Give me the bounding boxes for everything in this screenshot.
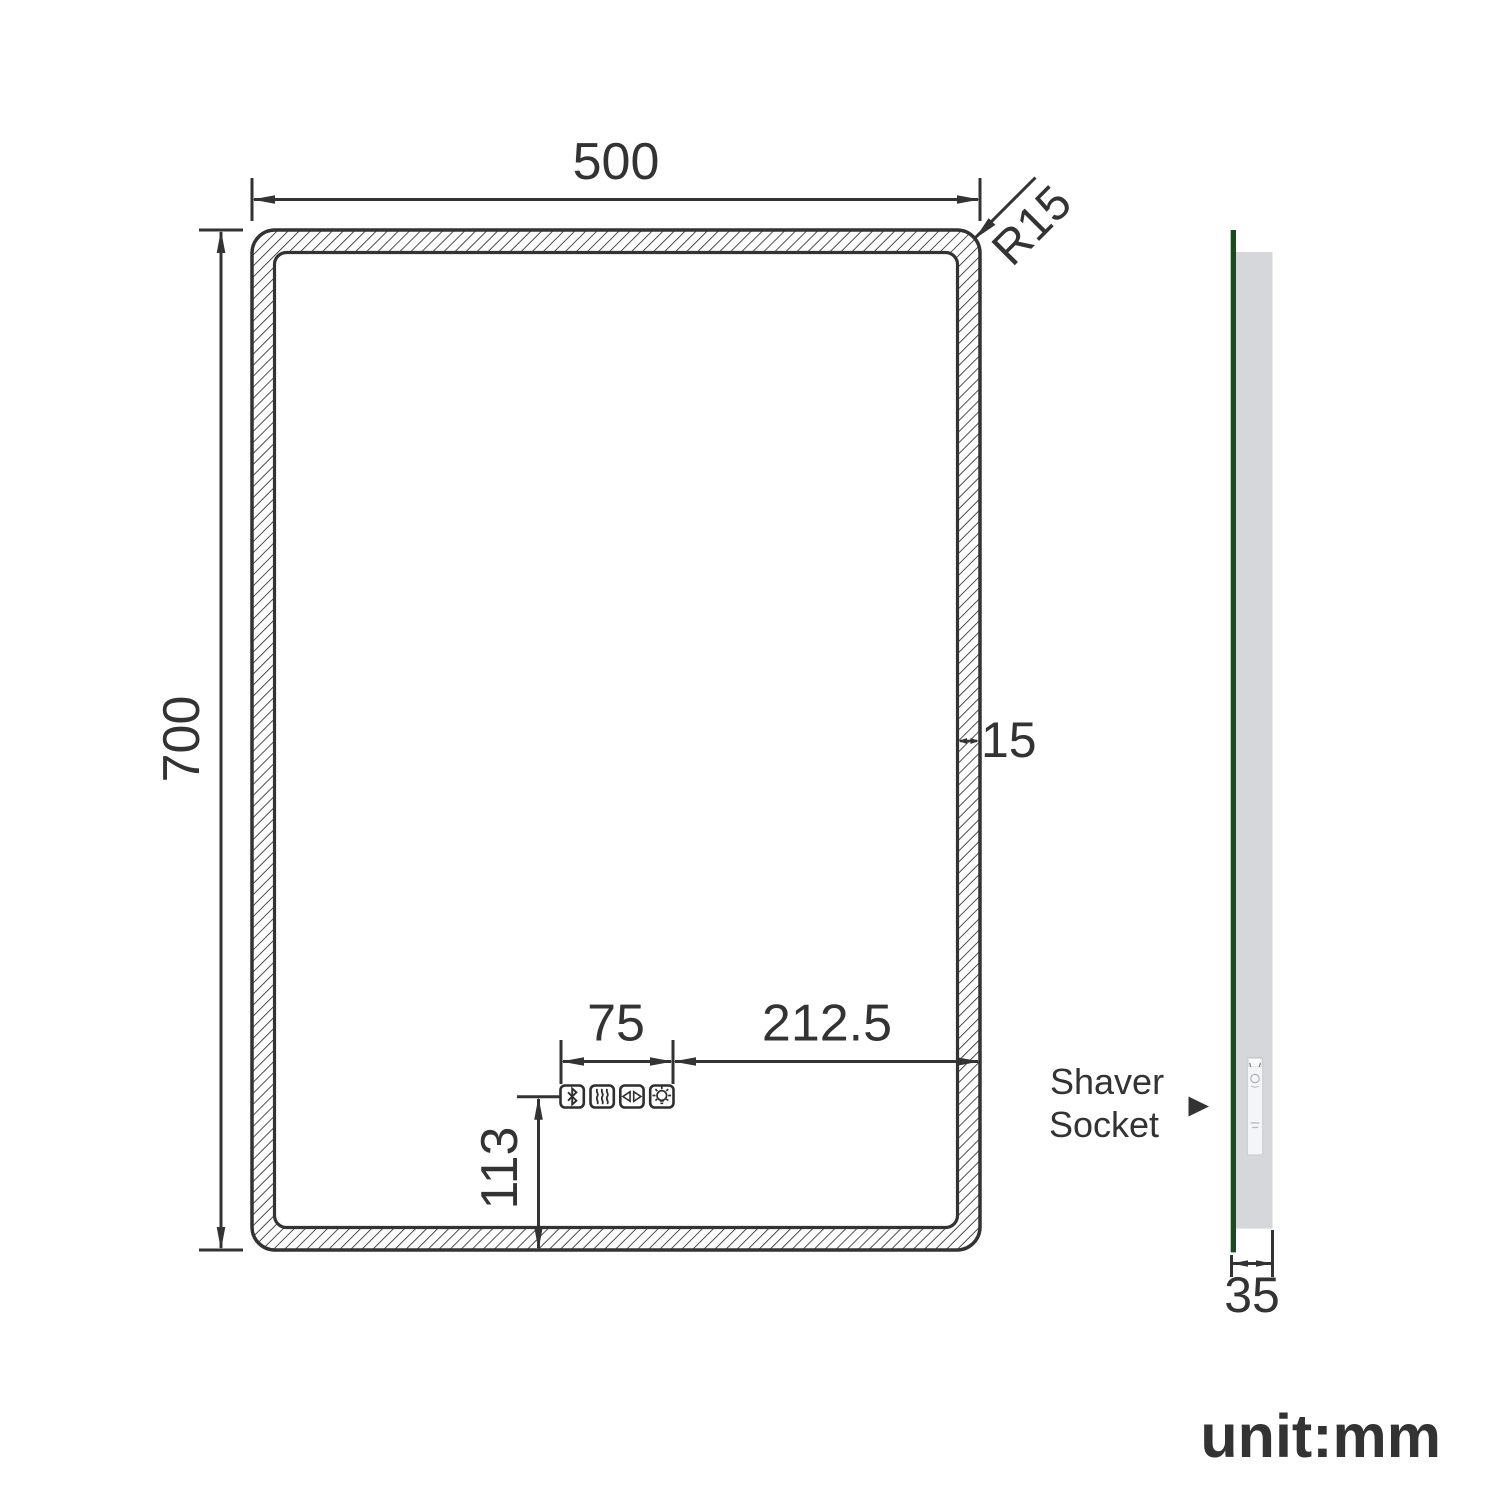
svg-text:75: 75 — [587, 995, 645, 1053]
svg-text:15: 15 — [981, 712, 1037, 768]
svg-text:Socket: Socket — [1049, 1104, 1159, 1145]
svg-text:500: 500 — [573, 133, 660, 191]
svg-text:unit:mm: unit:mm — [1200, 1402, 1441, 1470]
svg-text:212.5: 212.5 — [762, 995, 892, 1053]
svg-text:Shaver: Shaver — [1050, 1061, 1164, 1102]
svg-text:113: 113 — [471, 1127, 529, 1210]
svg-text:700: 700 — [153, 696, 211, 783]
svg-text:35: 35 — [1224, 1267, 1280, 1323]
